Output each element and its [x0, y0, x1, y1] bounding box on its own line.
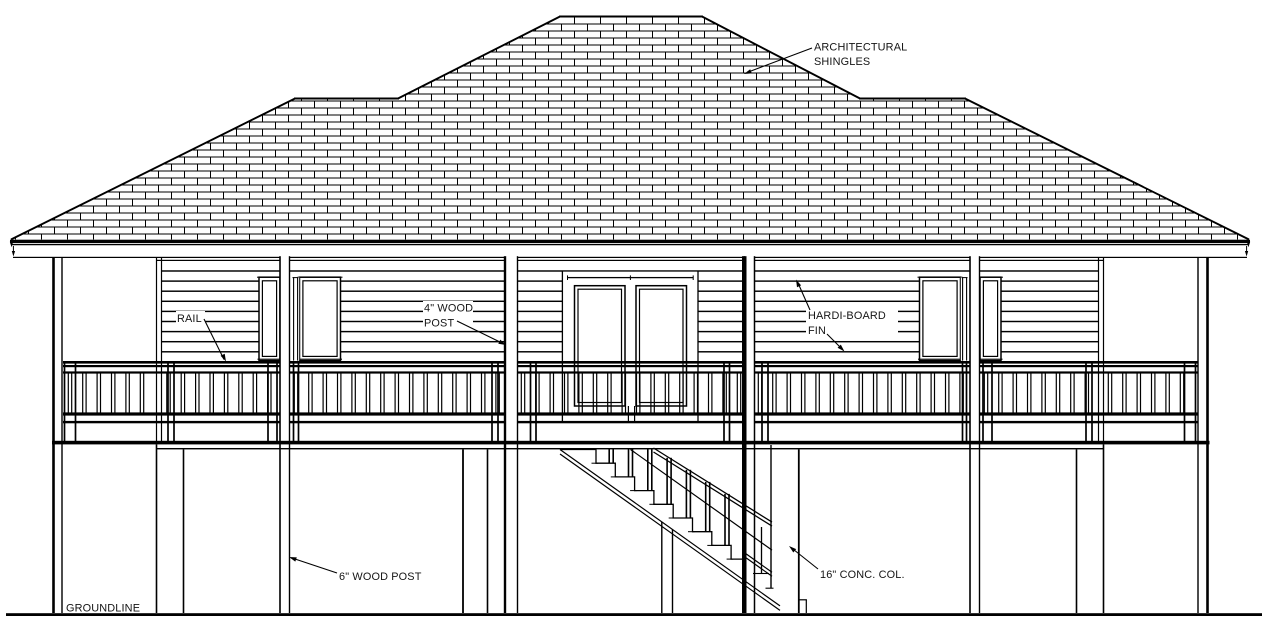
svg-text:GROUNDLINE: GROUNDLINE [66, 603, 140, 615]
svg-text:6" WOOD POST: 6" WOOD POST [339, 571, 422, 583]
svg-text:ARCHITECTURAL: ARCHITECTURAL [814, 42, 907, 54]
svg-text:16" CONC. COL.: 16" CONC. COL. [820, 569, 905, 581]
svg-text:RAIL: RAIL [177, 313, 202, 325]
svg-text:HARDI-BOARD: HARDI-BOARD [808, 310, 886, 322]
svg-text:4" WOOD: 4" WOOD [424, 303, 473, 315]
svg-text:POST: POST [424, 318, 454, 330]
svg-text:SHINGLES: SHINGLES [814, 56, 870, 68]
svg-text:FIN: FIN [808, 325, 826, 337]
